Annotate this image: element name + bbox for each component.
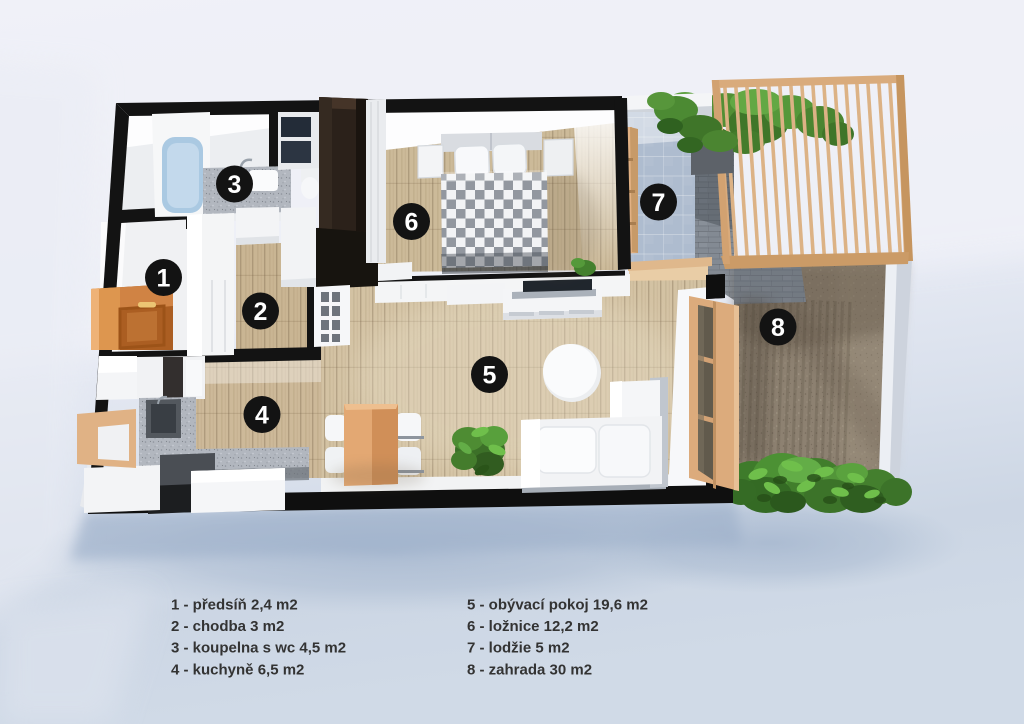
svg-text:5 - obývací pokoj 19,6 m2: 5 - obývací pokoj 19,6 m2: [467, 597, 648, 614]
svg-text:1: 1: [157, 265, 171, 293]
svg-text:7 - lodžie 5 m2: 7 - lodžie 5 m2: [467, 640, 570, 657]
svg-text:5: 5: [483, 362, 497, 390]
svg-text:6: 6: [405, 209, 419, 237]
svg-text:3 - koupelna s wc 4,5 m2: 3 - koupelna s wc 4,5 m2: [171, 640, 346, 657]
svg-text:4: 4: [255, 402, 269, 430]
svg-text:8 - zahrada 30 m2: 8 - zahrada 30 m2: [467, 661, 592, 678]
svg-text:6 - ložnice 12,2 m2: 6 - ložnice 12,2 m2: [467, 618, 599, 635]
svg-text:2 - chodba 3 m2: 2 - chodba 3 m2: [171, 618, 284, 635]
svg-text:7: 7: [652, 189, 666, 217]
svg-text:1 - předsíň 2,4 m2: 1 - předsíň 2,4 m2: [171, 597, 298, 614]
svg-text:4 - kuchyně 6,5 m2: 4 - kuchyně 6,5 m2: [171, 661, 304, 678]
svg-text:2: 2: [254, 298, 268, 326]
svg-text:8: 8: [771, 314, 785, 342]
svg-text:3: 3: [228, 171, 242, 199]
